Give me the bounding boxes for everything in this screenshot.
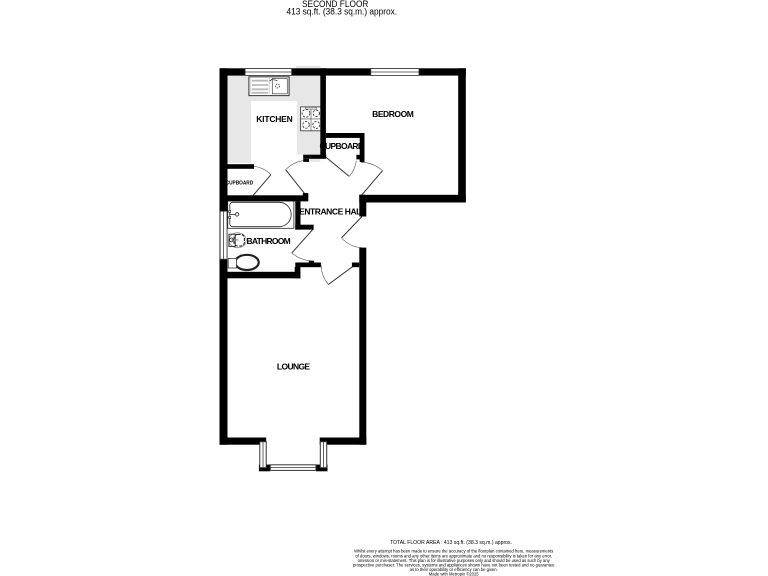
svg-text:CUPBOARD: CUPBOARD	[226, 181, 254, 187]
svg-text:Made with Metropix ©2025: Made with Metropix ©2025	[429, 572, 480, 576]
svg-text:CUPBOARD: CUPBOARD	[320, 141, 365, 151]
svg-text:BATHROOM: BATHROOM	[247, 236, 291, 246]
svg-text:BEDROOM: BEDROOM	[372, 109, 414, 119]
svg-text:TOTAL FLOOR AREA : 413 sq.ft.: TOTAL FLOOR AREA : 413 sq.ft. (38.3 sq.m…	[390, 540, 512, 546]
svg-text:413 sq.ft. (38.3 sq.m.) approx: 413 sq.ft. (38.3 sq.m.) approx.	[287, 6, 398, 16]
svg-text:ENTRANCE HALL: ENTRANCE HALL	[299, 206, 366, 216]
svg-text:LOUNGE: LOUNGE	[277, 362, 311, 372]
svg-text:KITCHEN: KITCHEN	[256, 114, 293, 124]
